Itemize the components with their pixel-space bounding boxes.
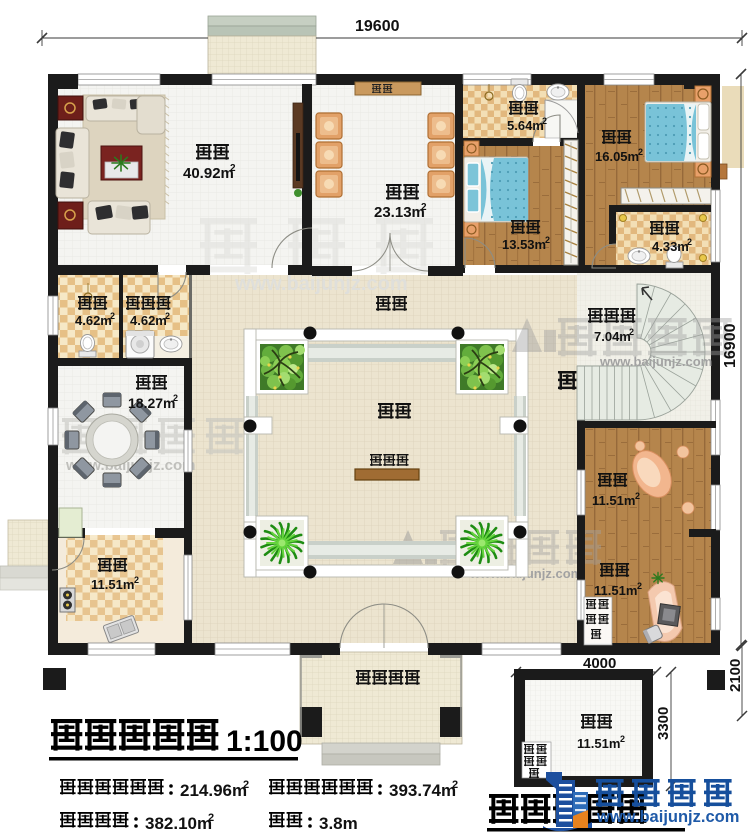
svg-text:40.92m: 40.92m [183, 165, 234, 182]
svg-text:2: 2 [421, 202, 427, 213]
svg-text:11.51m: 11.51m [91, 577, 134, 592]
svg-text:2100: 2100 [727, 659, 744, 692]
svg-text:393.74m: 393.74m [389, 781, 456, 800]
svg-text:5.64m: 5.64m [507, 118, 544, 133]
svg-text:2: 2 [165, 311, 170, 321]
svg-text:2: 2 [620, 734, 625, 744]
svg-text:18.27m: 18.27m [128, 395, 175, 411]
svg-text:13.53m: 13.53m [502, 237, 546, 252]
svg-text:11.51m: 11.51m [594, 583, 637, 598]
svg-text:214.96m: 214.96m [180, 781, 247, 800]
svg-text:2: 2 [230, 163, 236, 174]
svg-text:16.05m: 16.05m [595, 149, 639, 164]
svg-text:2: 2 [687, 237, 692, 247]
svg-text:4.62m: 4.62m [130, 313, 167, 328]
svg-text:7.04m: 7.04m [594, 329, 631, 344]
svg-text:3300: 3300 [655, 707, 672, 740]
svg-text:2: 2 [545, 235, 550, 245]
svg-text:2: 2 [243, 779, 249, 791]
svg-text:www.baijunjz.com: www.baijunjz.com [599, 354, 712, 369]
svg-text:2: 2 [629, 327, 634, 337]
svg-text:www.baijunjz.com: www.baijunjz.com [596, 808, 739, 826]
svg-text:www.baijunjz.com: www.baijunjz.com [234, 273, 408, 295]
svg-text:2: 2 [208, 812, 214, 824]
svg-text:2: 2 [110, 311, 115, 321]
svg-text:16900: 16900 [722, 323, 739, 368]
svg-text:2: 2 [542, 116, 547, 126]
svg-text:382.10m: 382.10m [145, 814, 212, 833]
svg-text:4.62m: 4.62m [75, 313, 112, 328]
svg-text:11.51m: 11.51m [577, 736, 620, 751]
svg-text:2: 2 [452, 779, 458, 791]
svg-text:2: 2 [635, 491, 640, 501]
svg-text:2: 2 [638, 147, 643, 157]
svg-text:2: 2 [173, 393, 178, 403]
svg-text:2: 2 [637, 581, 642, 591]
svg-text:11.51m: 11.51m [592, 493, 635, 508]
svg-text:2: 2 [134, 575, 139, 585]
svg-text:23.13m: 23.13m [374, 204, 425, 221]
svg-text:19600: 19600 [355, 18, 400, 35]
svg-text:4.33m: 4.33m [652, 239, 689, 254]
svg-text:1:100: 1:100 [226, 725, 303, 758]
svg-text:3.8m: 3.8m [319, 814, 358, 833]
